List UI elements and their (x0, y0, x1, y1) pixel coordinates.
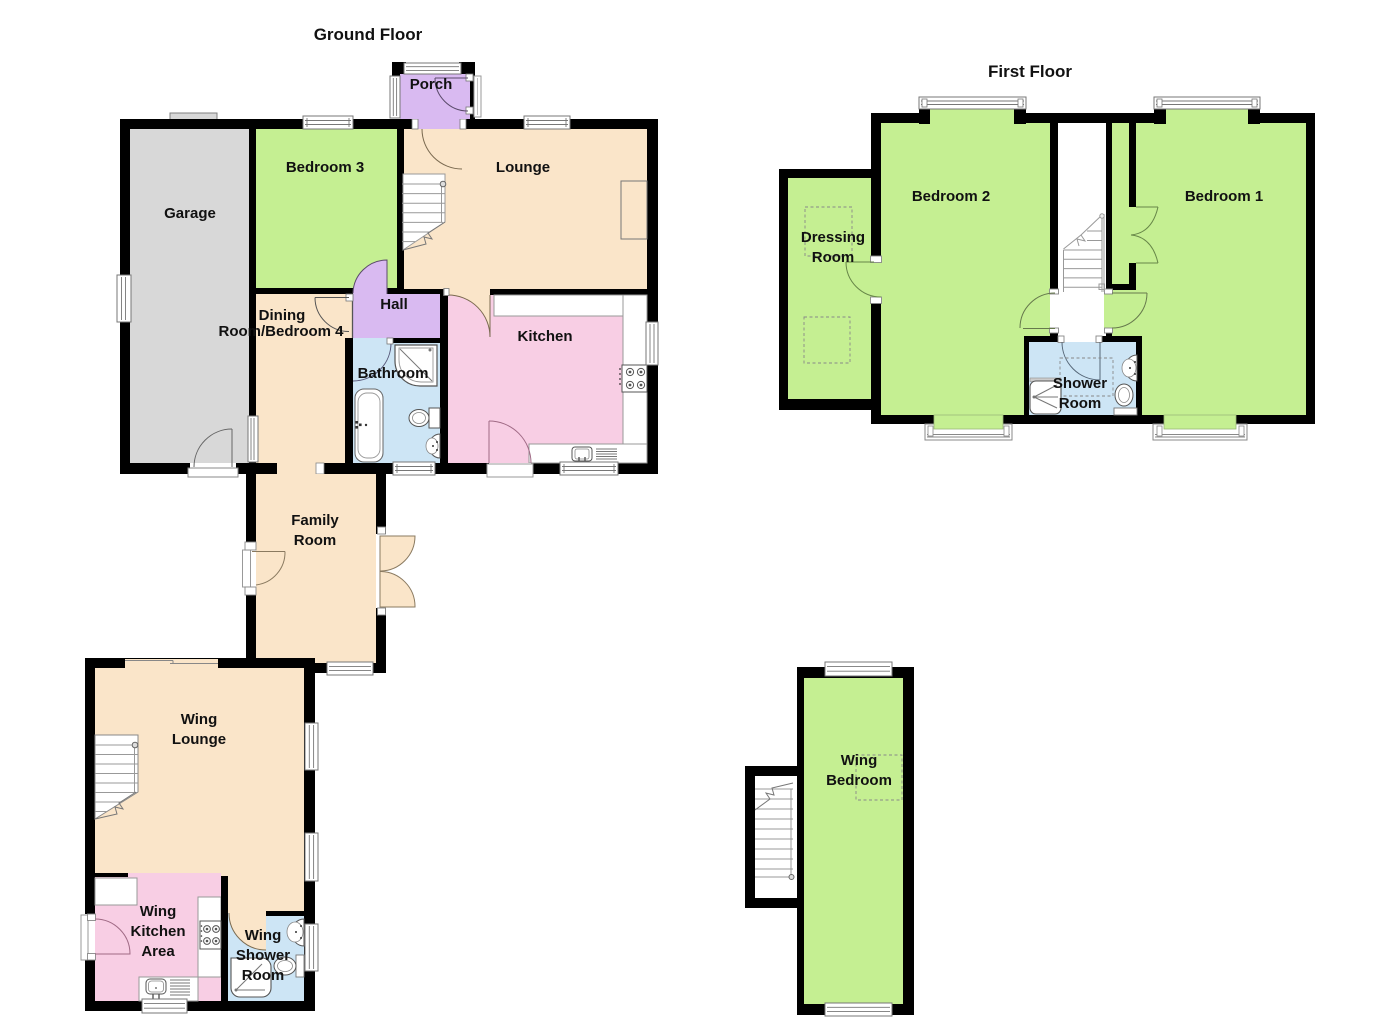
svg-text:Hall: Hall (380, 296, 408, 313)
svg-text:Shower: Shower (236, 947, 290, 964)
svg-text:Family: Family (291, 512, 339, 529)
svg-text:Bedroom 3: Bedroom 3 (286, 159, 364, 176)
svg-text:Area: Area (141, 943, 175, 960)
svg-text:Wing: Wing (140, 903, 177, 920)
svg-text:Wing: Wing (841, 752, 878, 769)
svg-text:Lounge: Lounge (172, 731, 226, 748)
svg-text:Ground Floor: Ground Floor (314, 25, 423, 44)
svg-text:Lounge: Lounge (496, 159, 550, 176)
svg-text:Kitchen: Kitchen (130, 923, 185, 940)
svg-text:Room: Room (242, 967, 285, 984)
svg-text:Wing: Wing (245, 927, 282, 944)
svg-text:Dressing: Dressing (801, 229, 865, 246)
svg-text:Room: Room (1059, 395, 1102, 412)
svg-text:Room/Bedroom 4: Room/Bedroom 4 (218, 323, 344, 340)
svg-text:First Floor: First Floor (988, 62, 1072, 81)
svg-text:Porch: Porch (410, 76, 453, 93)
svg-text:Bedroom 1: Bedroom 1 (1185, 188, 1263, 205)
svg-text:Bedroom: Bedroom (826, 772, 892, 789)
svg-text:Garage: Garage (164, 205, 216, 222)
svg-text:Kitchen: Kitchen (517, 328, 572, 345)
svg-text:Shower: Shower (1053, 375, 1107, 392)
svg-text:Bedroom 2: Bedroom 2 (912, 188, 990, 205)
svg-text:Dining: Dining (259, 307, 306, 324)
svg-text:Bathroom: Bathroom (358, 365, 429, 382)
svg-text:Wing: Wing (181, 711, 218, 728)
svg-text:Room: Room (812, 249, 855, 266)
svg-text:Room: Room (294, 532, 337, 549)
